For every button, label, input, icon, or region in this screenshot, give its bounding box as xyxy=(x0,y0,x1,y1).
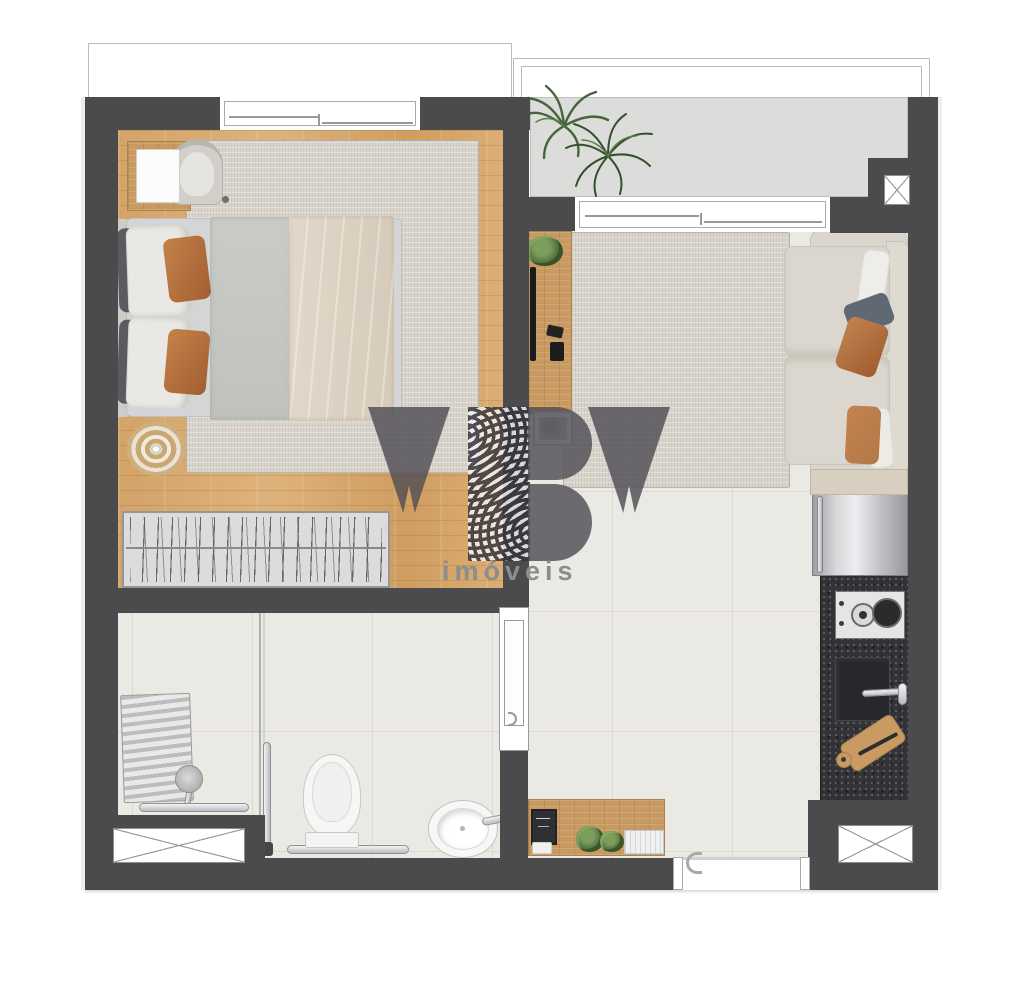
bathroom-door-leaf xyxy=(504,620,524,726)
fridge xyxy=(812,492,908,576)
wall-top-left xyxy=(85,97,220,130)
toilet-seat xyxy=(312,762,352,822)
shower-glass-1 xyxy=(259,613,261,816)
living-room-rug xyxy=(563,232,790,488)
living-window-sash-2 xyxy=(704,221,822,223)
bedroom-window-mullion xyxy=(318,114,320,126)
wardrobe-hangers xyxy=(130,517,382,582)
bed-duvet xyxy=(210,217,292,420)
shower-head xyxy=(175,765,203,793)
fridge-handle xyxy=(817,496,823,573)
roof-outline-left xyxy=(88,43,512,98)
floor-plan: imóveis xyxy=(0,0,1024,1000)
armchair-seat xyxy=(180,152,214,196)
wall-right xyxy=(908,97,938,890)
logo-tagline: imóveis xyxy=(442,556,662,587)
chalkboard-scribble-2 xyxy=(538,826,549,827)
armchair-knob xyxy=(222,196,229,203)
wall-bottom-mid xyxy=(265,858,682,890)
wall-under-balcony-left xyxy=(528,197,575,231)
tv xyxy=(530,267,536,361)
logo-letter-b-wave xyxy=(468,407,530,561)
living-window-sash-1 xyxy=(585,215,699,217)
building-shadow-right xyxy=(938,97,942,890)
sideboard-plant-2 xyxy=(600,831,624,852)
sideboard-vase xyxy=(532,842,552,854)
bathroom-drain xyxy=(460,826,465,831)
console-decor xyxy=(550,342,564,361)
toilet-tank xyxy=(305,832,359,848)
wall-bathroom-door-side xyxy=(500,750,528,858)
round-rug xyxy=(127,422,185,476)
cooktop-knob-1 xyxy=(839,601,844,606)
nightstand-tray xyxy=(136,149,180,203)
building-shadow-bottom xyxy=(85,890,938,894)
palm-plant-icon xyxy=(516,82,666,214)
sideboard-books xyxy=(624,830,664,854)
sofa-pillow-tan-2 xyxy=(845,405,882,465)
air-shaft-kitchen xyxy=(838,825,913,863)
living-window-mullion xyxy=(700,213,702,225)
sideboard-chalkboard xyxy=(531,809,557,845)
shower-grab-bar xyxy=(139,803,249,812)
entry-jamb-right xyxy=(800,857,810,890)
entry-door-handle xyxy=(686,852,702,874)
wall-bedroom-bottom xyxy=(85,588,528,613)
chalkboard-scribble-1 xyxy=(536,818,550,819)
burner-large xyxy=(872,598,902,628)
cooktop-knob-2 xyxy=(839,621,844,626)
wardrobe-rail xyxy=(126,547,386,549)
bedroom-window-sash-1 xyxy=(229,116,318,118)
air-shaft-bathroom xyxy=(113,828,245,863)
burner-small-center xyxy=(859,611,867,619)
bed-pillow-orange-2 xyxy=(163,328,210,395)
bedroom-window-sash-2 xyxy=(322,122,413,124)
kitchen-faucet-base xyxy=(898,683,907,705)
air-shaft-balcony xyxy=(884,175,910,205)
bed-blanket xyxy=(289,216,394,420)
console-plant xyxy=(527,236,563,266)
cutting-board-hole xyxy=(841,757,846,762)
bed-pillow-orange-1 xyxy=(162,235,211,304)
entry-jamb-left xyxy=(673,857,683,890)
sofa-side-table xyxy=(810,469,908,495)
wall-left xyxy=(85,97,118,890)
